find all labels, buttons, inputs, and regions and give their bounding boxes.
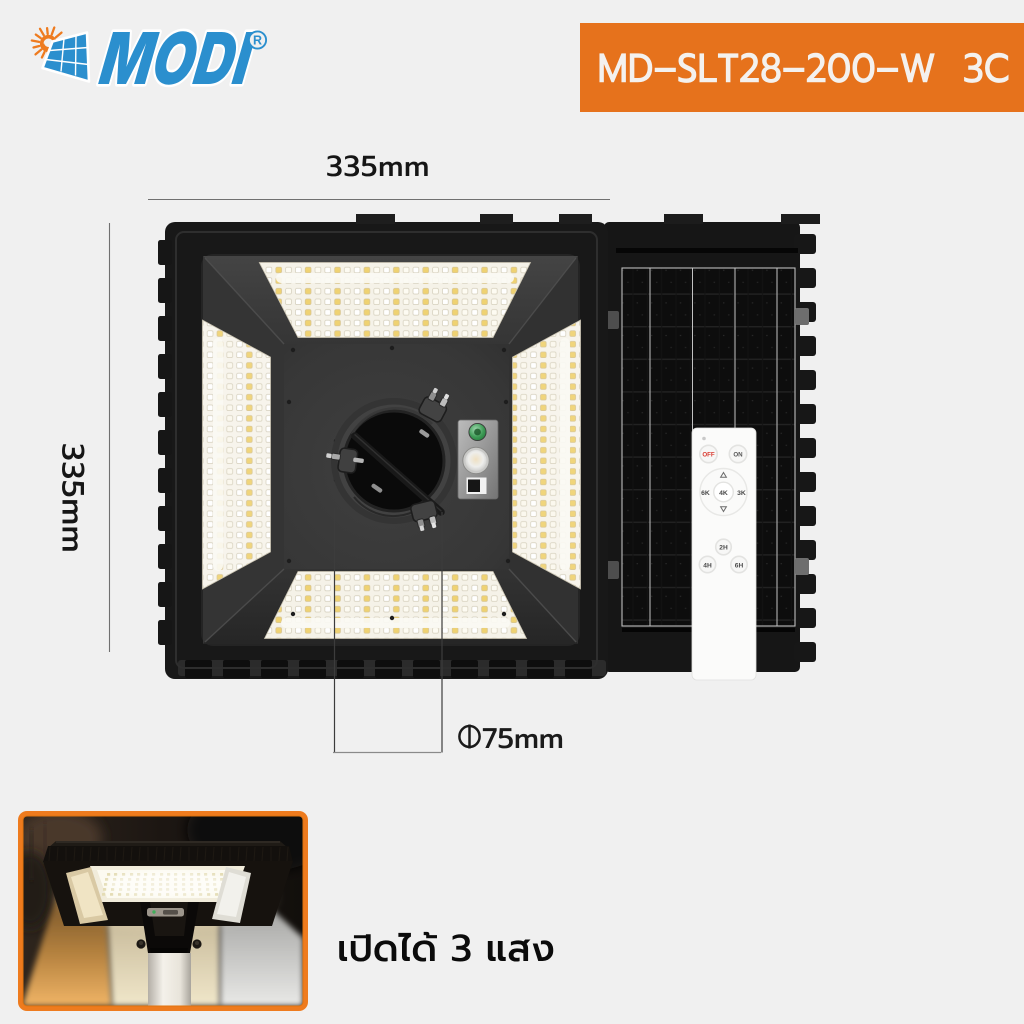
svg-text:2H: 2H <box>719 545 728 552</box>
svg-text:4H: 4H <box>703 562 712 569</box>
svg-text:6K: 6K <box>701 490 710 497</box>
svg-text:3K: 3K <box>737 490 746 497</box>
svg-text:ON: ON <box>733 452 743 459</box>
svg-text:6H: 6H <box>735 562 744 569</box>
svg-text:OFF: OFF <box>702 452 715 459</box>
svg-text:R: R <box>253 34 262 48</box>
svg-text:4K: 4K <box>719 490 728 497</box>
